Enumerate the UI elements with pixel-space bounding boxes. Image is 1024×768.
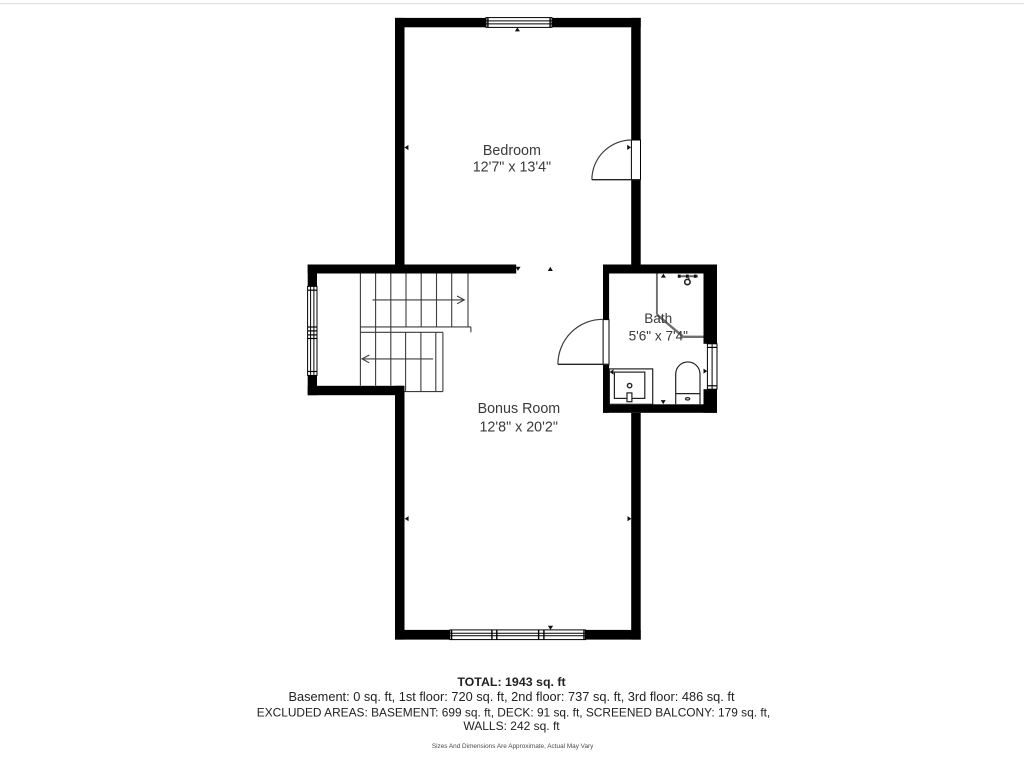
svg-text:TOTAL: 1943 sq. ft: TOTAL: 1943 sq. ft: [457, 675, 565, 689]
svg-text:EXCLUDED AREAS: BASEMENT: 699: EXCLUDED AREAS: BASEMENT: 699 sq. ft, DE…: [257, 706, 770, 720]
svg-text:12'8" x 20'2": 12'8" x 20'2": [479, 419, 557, 435]
svg-text:Basement: 0 sq. ft, 1st floor:: Basement: 0 sq. ft, 1st floor: 720 sq. f…: [289, 689, 735, 704]
svg-text:Bedroom: Bedroom: [483, 143, 541, 159]
svg-text:Bonus Room: Bonus Room: [478, 401, 561, 417]
svg-text:5'6" x 7'4": 5'6" x 7'4": [629, 329, 689, 344]
svg-text:Sizes And Dimensions Are Appro: Sizes And Dimensions Are Approximate, Ac…: [432, 743, 594, 750]
svg-text:12'7" x 13'4": 12'7" x 13'4": [473, 160, 551, 176]
svg-text:WALLS: 242 sq. ft: WALLS: 242 sq. ft: [463, 719, 560, 733]
svg-text:Bath: Bath: [644, 311, 672, 326]
